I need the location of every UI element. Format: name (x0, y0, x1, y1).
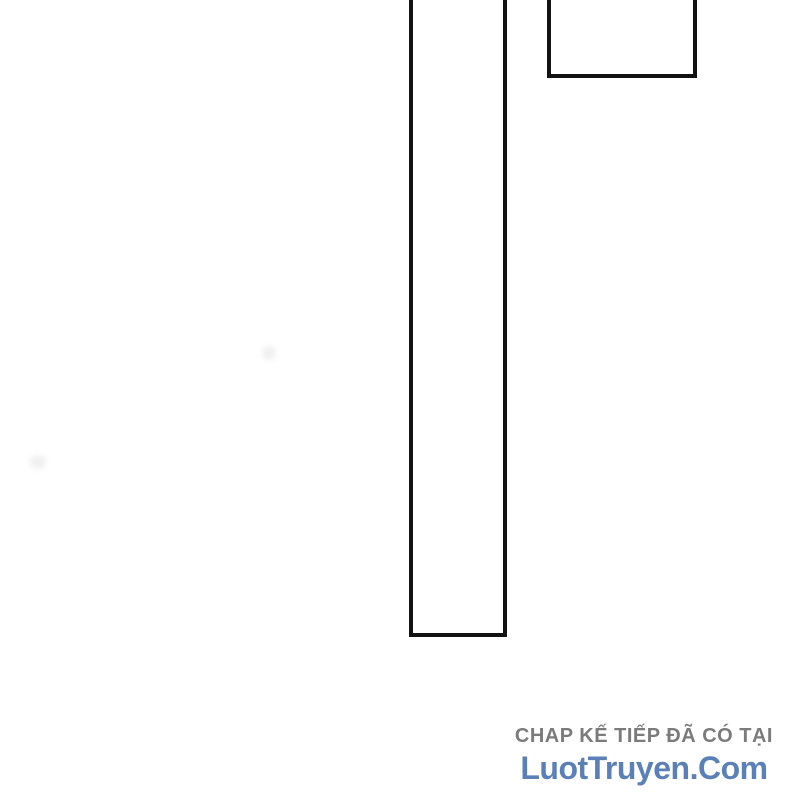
panel-border-tall (409, 0, 507, 637)
watermark-tagline: CHAP KẾ TIẾP ĐÃ CÓ TẠI (515, 725, 773, 747)
watermark-site-name: LuotTruyen.Com (515, 750, 773, 787)
panel-border-small (547, 0, 697, 78)
ink-smudge (30, 455, 46, 469)
comic-page: CHAP KẾ TIẾP ĐÃ CÓ TẠI LuotTruyen.Com (0, 0, 800, 800)
site-watermark: CHAP KẾ TIẾP ĐÃ CÓ TẠI LuotTruyen.Com (515, 725, 773, 787)
ink-smudge (262, 346, 276, 360)
